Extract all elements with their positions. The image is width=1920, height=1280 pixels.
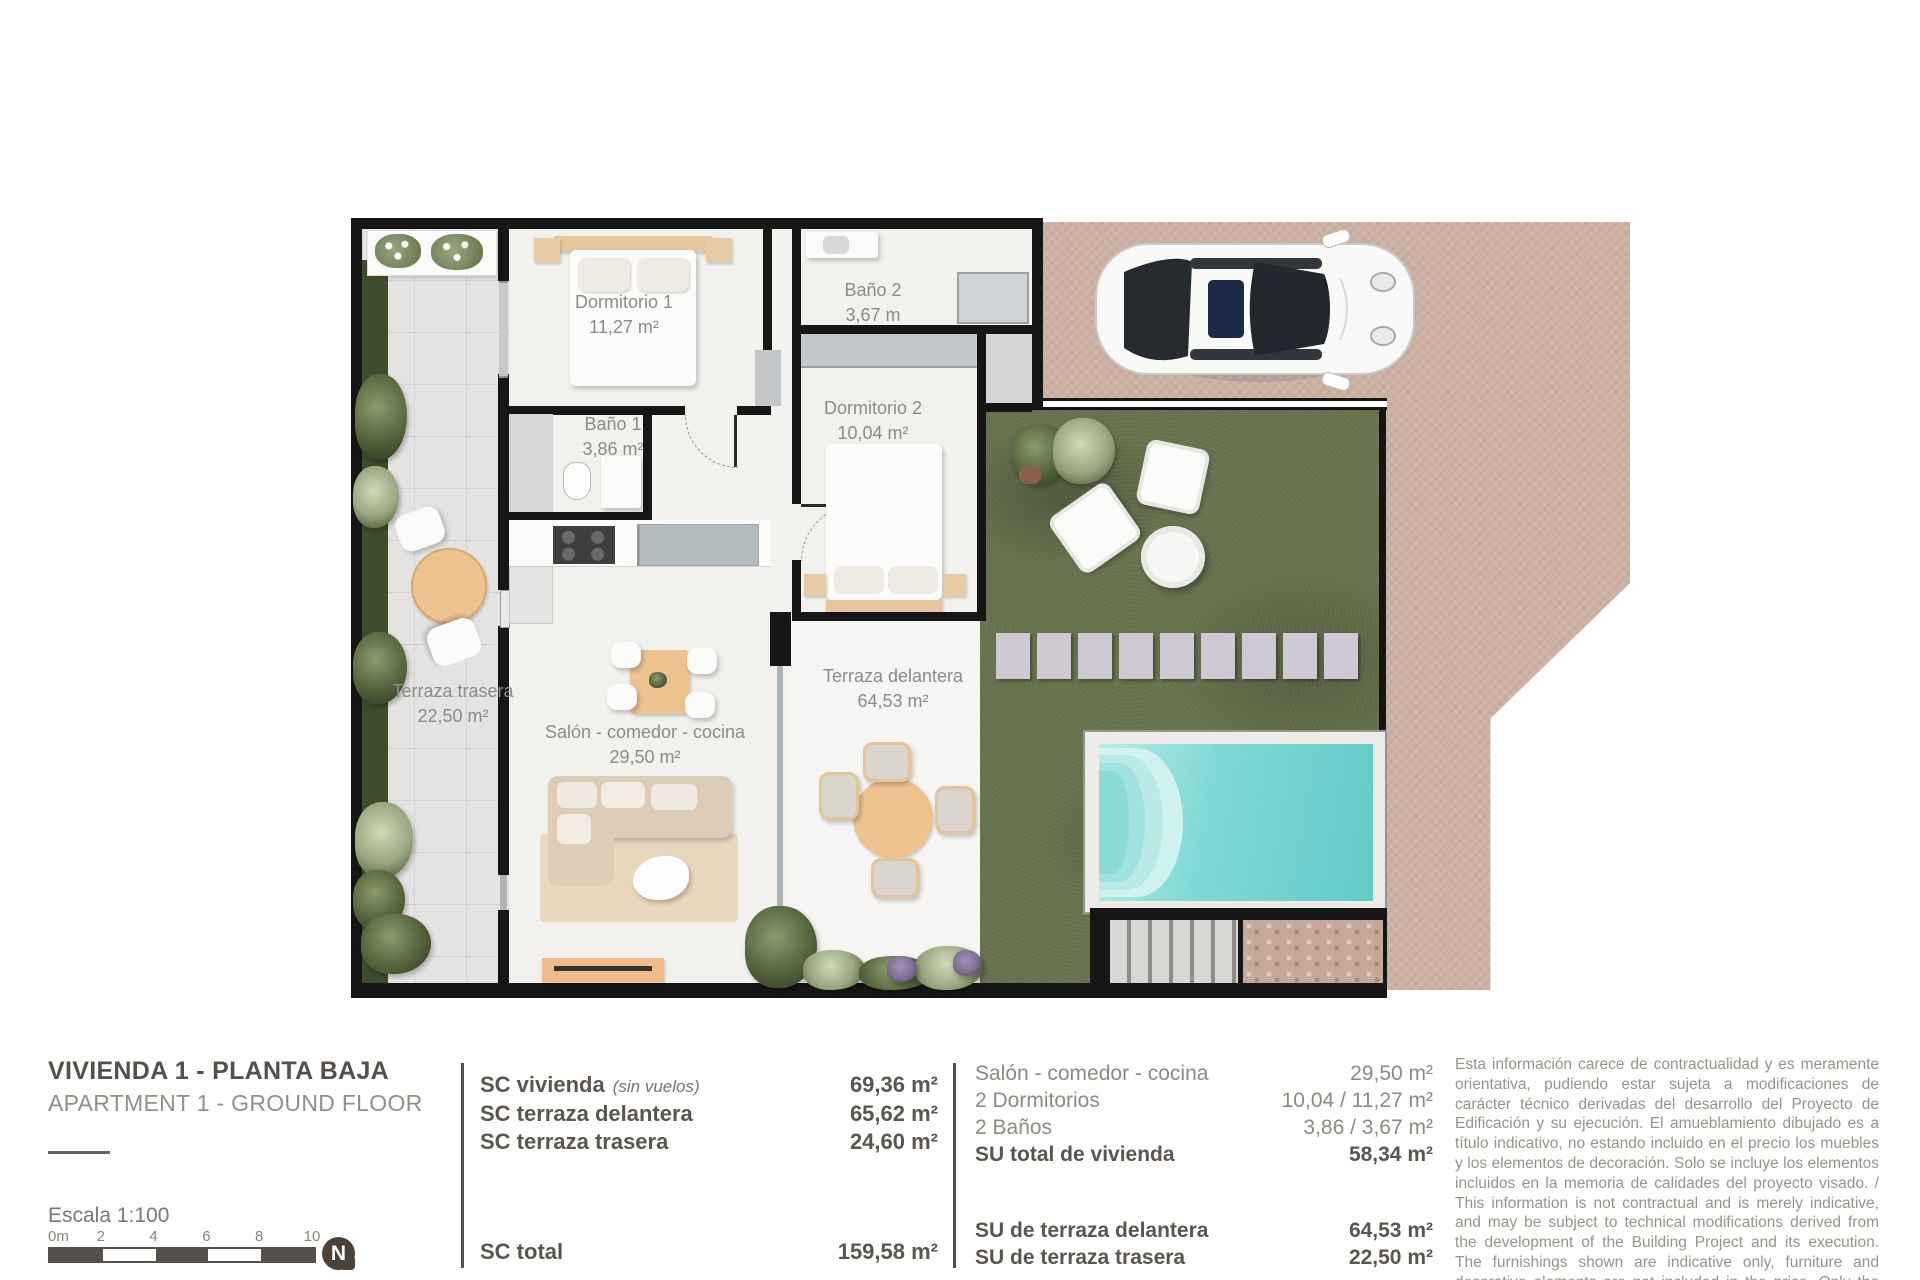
room-label-salon: Salón - comedor - cocina 29,50 m² bbox=[520, 720, 770, 770]
stepping-stone bbox=[1242, 633, 1276, 679]
wall bbox=[792, 612, 986, 621]
room-area: 64,53 m² bbox=[793, 689, 993, 714]
nightstand bbox=[804, 574, 826, 596]
pillow bbox=[888, 566, 938, 594]
room-name: Salón - comedor - cocina bbox=[520, 720, 770, 745]
dining-chair bbox=[687, 648, 717, 674]
garden-coffee-table bbox=[1141, 526, 1205, 588]
wall bbox=[986, 403, 1032, 412]
stepping-stone bbox=[1078, 633, 1112, 679]
room-name: Baño 2 bbox=[803, 278, 943, 303]
sc-value: 69,36 m² bbox=[850, 1072, 938, 1098]
stepping-stone bbox=[1283, 633, 1317, 679]
scale-tick: 8 bbox=[255, 1228, 263, 1245]
sofa-cushion bbox=[651, 784, 697, 810]
scale-tick: 0m bbox=[48, 1228, 69, 1245]
flower-cluster bbox=[431, 234, 483, 270]
wardrobe bbox=[801, 334, 977, 368]
stepping-stone bbox=[1201, 633, 1235, 679]
cooktop bbox=[553, 526, 615, 564]
kitchen-sink-unit bbox=[509, 566, 553, 624]
flower-cluster bbox=[375, 234, 421, 268]
kitchen-cabinets bbox=[637, 524, 759, 566]
room-area: 3,67 m bbox=[803, 303, 943, 328]
garden-stairs bbox=[1110, 920, 1238, 986]
su-row-terraza-delantera: SU de terraza delantera 64,53 m² bbox=[975, 1219, 1433, 1243]
floor-plan-sheet: Dormitorio 1 11,27 m² Baño 2 3,67 m Baño… bbox=[0, 0, 1920, 1280]
wall bbox=[737, 406, 771, 415]
room-name: Dormitorio 2 bbox=[803, 396, 943, 421]
room-name: Dormitorio 1 bbox=[524, 290, 724, 315]
north-letter: N bbox=[322, 1237, 355, 1270]
toilet bbox=[563, 462, 591, 500]
floor-plan: Dormitorio 1 11,27 m² Baño 2 3,67 m Baño… bbox=[351, 214, 1631, 998]
pillow bbox=[637, 258, 689, 292]
scale-tick: 4 bbox=[149, 1228, 157, 1245]
sc-row-terraza-trasera: SC terraza trasera 24,60 m² bbox=[480, 1129, 938, 1155]
room-area: 10,04 m² bbox=[803, 421, 943, 446]
nightstand bbox=[944, 574, 966, 596]
wall bbox=[792, 334, 801, 504]
outdoor-dining-table bbox=[853, 778, 933, 858]
room-area: 29,50 m² bbox=[520, 745, 770, 770]
scale-segment bbox=[156, 1249, 209, 1261]
scale-tick: 10 bbox=[304, 1228, 321, 1245]
su-value: 3,86 / 3,67 m² bbox=[1303, 1116, 1433, 1140]
outdoor-chair bbox=[871, 858, 919, 898]
bistro-table bbox=[411, 548, 487, 624]
pillow bbox=[834, 566, 884, 594]
su-row-terraza-trasera: SU de terraza trasera 22,50 m² bbox=[975, 1246, 1433, 1270]
wall bbox=[498, 626, 509, 875]
sc-row-total: SC total 159,58 m² bbox=[480, 1239, 938, 1265]
side-path-paving bbox=[1385, 400, 1630, 990]
car-top-view bbox=[1090, 228, 1420, 392]
su-row-dormitorios: 2 Dormitorios 10,04 / 11,27 m² bbox=[975, 1089, 1433, 1113]
stepping-stone bbox=[1324, 633, 1358, 679]
north-arrow-icon: N bbox=[322, 1237, 355, 1270]
sofa-cushion bbox=[557, 782, 597, 808]
wall bbox=[498, 374, 509, 590]
su-row-salon: Salón - comedor - cocina 29,50 m² bbox=[975, 1062, 1433, 1086]
wall bbox=[770, 612, 791, 666]
terrace-door bbox=[499, 281, 508, 378]
sheet-title: VIVIENDA 1 - PLANTA BAJA bbox=[48, 1057, 389, 1086]
scale-label: Escala 1:100 bbox=[48, 1204, 169, 1228]
sc-label: SC terraza trasera bbox=[480, 1129, 668, 1155]
scale-segment bbox=[261, 1249, 314, 1261]
sofa-cushion bbox=[601, 782, 645, 808]
outdoor-chair bbox=[819, 772, 859, 820]
room-area: 3,86 m² bbox=[543, 437, 683, 462]
su-value: 64,53 m² bbox=[1349, 1219, 1433, 1243]
title-divider bbox=[48, 1151, 110, 1154]
su-row-banos: 2 Baños 3,86 / 3,67 m² bbox=[975, 1116, 1433, 1140]
window bbox=[500, 875, 507, 910]
su-label: SU de terraza trasera bbox=[975, 1246, 1185, 1270]
su-label: 2 Baños bbox=[975, 1116, 1052, 1140]
nightstand bbox=[706, 238, 732, 262]
sc-value: 65,62 m² bbox=[850, 1101, 938, 1127]
dining-chair bbox=[685, 692, 715, 718]
divider-rule bbox=[953, 1063, 956, 1268]
stepping-stone bbox=[1037, 633, 1071, 679]
scale-tick: 6 bbox=[202, 1228, 210, 1245]
dining-chair bbox=[607, 684, 637, 710]
su-value: 58,34 m² bbox=[1349, 1143, 1433, 1167]
sc-value: 24,60 m² bbox=[850, 1129, 938, 1155]
room-area: 11,27 m² bbox=[524, 315, 724, 340]
stepping-stone bbox=[996, 633, 1030, 679]
wall bbox=[498, 228, 509, 281]
scale-bar-segments bbox=[48, 1247, 316, 1263]
nightstand bbox=[534, 238, 560, 262]
su-value: 29,50 m² bbox=[1350, 1062, 1433, 1086]
scale-segment bbox=[103, 1249, 156, 1261]
room-name: Terraza delantera bbox=[793, 664, 993, 689]
wall bbox=[498, 910, 509, 983]
wall bbox=[763, 228, 772, 350]
garden-armchair bbox=[1135, 438, 1211, 516]
room-label-dormitorio-2: Dormitorio 2 10,04 m² bbox=[803, 396, 943, 446]
sc-label: SC terraza delantera bbox=[480, 1101, 693, 1127]
garden-fence-beam bbox=[1043, 398, 1387, 410]
sheet-subtitle: APARTMENT 1 - GROUND FLOOR bbox=[48, 1090, 423, 1117]
stepping-stone bbox=[1119, 633, 1153, 679]
outdoor-chair bbox=[863, 742, 911, 782]
room-name: Baño 1 bbox=[543, 412, 683, 437]
su-value: 10,04 / 11,27 m² bbox=[1282, 1089, 1433, 1113]
pebble-patch bbox=[1243, 920, 1383, 986]
scale-tick: 2 bbox=[97, 1228, 105, 1245]
sc-label: SC vivienda bbox=[480, 1072, 605, 1097]
wall bbox=[351, 218, 1043, 229]
room-label-dormitorio-1: Dormitorio 1 11,27 m² bbox=[524, 290, 724, 340]
legal-disclaimer: Esta información carece de contractualid… bbox=[1455, 1055, 1879, 1280]
outdoor-chair bbox=[935, 786, 975, 834]
sc-total-label: SC total bbox=[480, 1239, 563, 1265]
tv bbox=[554, 966, 652, 971]
scale-segment bbox=[208, 1249, 261, 1261]
su-label: SU de terraza delantera bbox=[975, 1219, 1208, 1243]
room-label-bano-2: Baño 2 3,67 m bbox=[803, 278, 943, 328]
pillow bbox=[578, 258, 630, 292]
stepping-stone bbox=[1160, 633, 1194, 679]
divider-rule bbox=[461, 1063, 464, 1268]
su-label: SU total de vivienda bbox=[975, 1143, 1175, 1167]
sc-total-value: 159,58 m² bbox=[838, 1239, 938, 1265]
door-leaf bbox=[734, 415, 737, 467]
dining-chair bbox=[611, 642, 641, 668]
room-name: Terraza trasera bbox=[353, 679, 553, 704]
wall bbox=[792, 228, 801, 329]
bed-headboard bbox=[826, 600, 942, 612]
sofa-cushion bbox=[557, 814, 591, 844]
wall bbox=[1032, 218, 1043, 410]
wardrobe bbox=[755, 350, 781, 406]
scale-segment bbox=[50, 1249, 103, 1261]
sink bbox=[823, 236, 849, 254]
flower-pot bbox=[1019, 466, 1041, 484]
sc-note: (sin vuelos) bbox=[613, 1077, 700, 1096]
sc-row-vivienda: SC vivienda(sin vuelos) 69,36 m² bbox=[480, 1072, 938, 1098]
shower-tray bbox=[957, 272, 1029, 324]
su-row-total-vivienda: SU total de vivienda 58,34 m² bbox=[975, 1143, 1433, 1167]
su-label: 2 Dormitorios bbox=[975, 1089, 1100, 1113]
room-label-bano-1: Baño 1 3,86 m² bbox=[543, 412, 683, 462]
room-label-terraza-delantera: Terraza delantera 64,53 m² bbox=[793, 664, 993, 714]
scale-bar: 0m 2 4 6 8 10 bbox=[48, 1228, 312, 1262]
bathroom-vanity bbox=[601, 456, 641, 508]
closet bbox=[986, 334, 1032, 403]
su-label: Salón - comedor - cocina bbox=[975, 1062, 1208, 1086]
sc-row-terraza-delantera: SC terraza delantera 65,62 m² bbox=[480, 1101, 938, 1127]
wall bbox=[977, 325, 986, 621]
su-value: 22,50 m² bbox=[1349, 1246, 1433, 1270]
